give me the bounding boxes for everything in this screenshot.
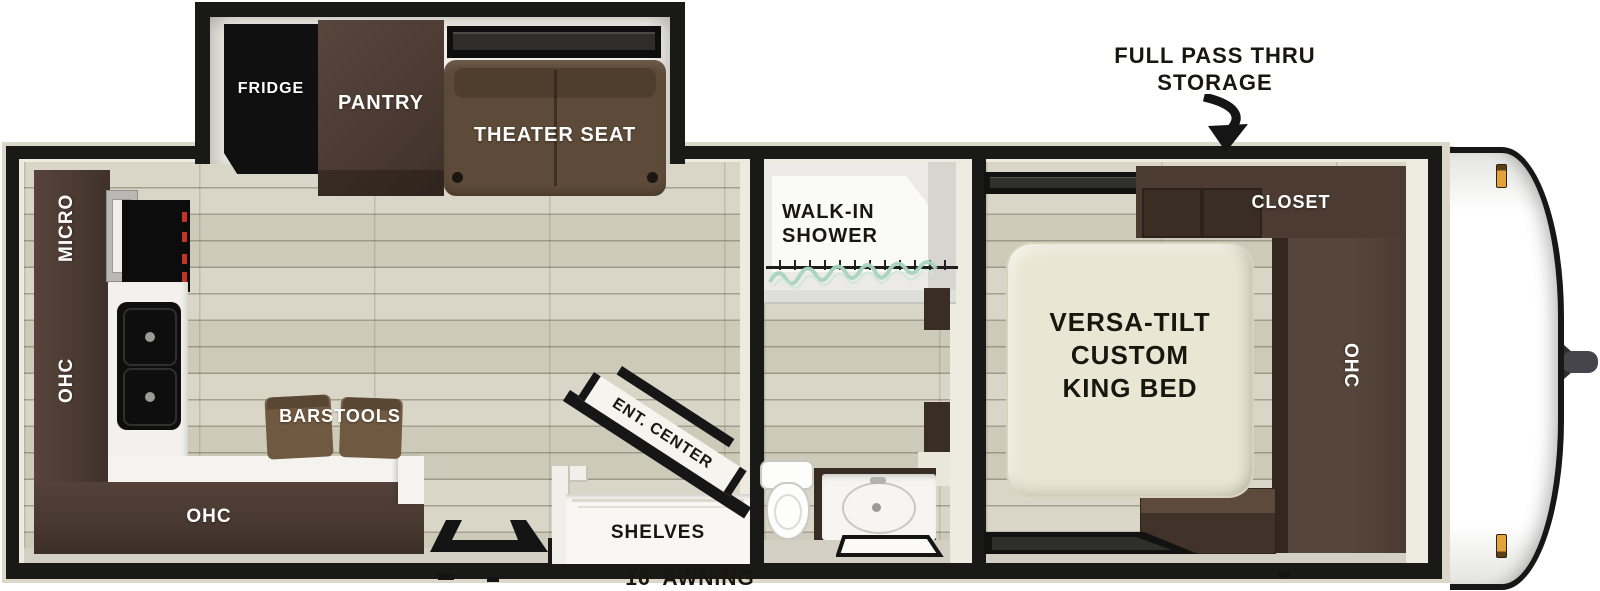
king-bed: VERSA-TILT CUSTOM KING BED (1006, 242, 1254, 498)
bedroom-window-head (984, 172, 1142, 194)
awning-arm-mark (487, 577, 499, 582)
fridge: FRIDGE (224, 24, 318, 174)
vanity-faucet (870, 477, 886, 484)
toilet-bowl (766, 482, 810, 540)
bathroom-right-wall (972, 146, 986, 579)
bathroom-left-wall (750, 146, 764, 579)
theater-seat-label: THEATER SEAT (444, 124, 666, 147)
slideout-window (447, 26, 661, 58)
cooktop (122, 200, 190, 292)
sink-drain-upper (145, 332, 155, 342)
theater-seat-cupholder-right (647, 172, 658, 183)
shower-label-line2: SHOWER (782, 224, 878, 248)
awning-arm-mark (438, 574, 454, 580)
cooktop-knob (182, 272, 187, 282)
bedroom-ohc-label: OHC (1332, 324, 1368, 408)
pass-thru-storage-line2: STORAGE (1095, 69, 1335, 96)
shelves-label: SHELVES (566, 522, 750, 544)
pantry-label: PANTRY (318, 92, 444, 115)
closet-door-panel (1142, 188, 1202, 238)
pass-thru-storage-line1: FULL PASS THRU (1095, 42, 1335, 69)
rv-floorplan: FRIDGE PANTRY THEATER SEAT MICRO OHC OHC (0, 0, 1600, 591)
barstool (264, 394, 333, 459)
bar-counter-step (398, 456, 424, 504)
toilet-seat-ring (774, 494, 802, 530)
bedroom-window-foot (984, 528, 1200, 556)
kitchen-ohc-lower-label: OHC (34, 506, 384, 528)
slideout-window-glass (453, 32, 655, 50)
closet: CLOSET (1136, 166, 1406, 238)
cooktop-knob (182, 254, 187, 264)
bath-cabinet-accent-upper (924, 288, 950, 330)
front-cap (1450, 147, 1564, 590)
bedroom-window-head-glass (990, 177, 1136, 188)
bath-mat (836, 534, 944, 558)
pass-thru-storage-label: FULL PASS THRU STORAGE (1095, 42, 1335, 96)
pantry: PANTRY (318, 20, 444, 196)
cooktop-knob (182, 232, 187, 242)
kitchen-ohc-wall-label: OHC (42, 338, 92, 422)
shower-label-line1: WALK-IN (782, 200, 878, 224)
bed-label-line2: CUSTOM (1008, 339, 1252, 372)
cooktop-knob (182, 212, 187, 222)
fridge-label: FRIDGE (224, 80, 318, 98)
marker-light-top (1496, 164, 1507, 188)
barstools-label: BARSTOOLS (258, 406, 422, 426)
bed-label-line3: KING BED (1008, 372, 1252, 405)
bed-label: VERSA-TILT CUSTOM KING BED (1008, 306, 1252, 405)
marker-light-bottom (1496, 534, 1507, 558)
bed-label-line1: VERSA-TILT (1008, 306, 1252, 339)
awning-arm-mark (1278, 572, 1290, 577)
vanity-drain (872, 503, 881, 512)
pantry-front-face (318, 170, 444, 196)
bedroom-front-wall (1428, 146, 1442, 579)
entry-step (424, 516, 556, 554)
theater-seat: THEATER SEAT (444, 60, 666, 196)
kitchen-lower-cabinet: OHC (34, 482, 424, 554)
micro-label: MICRO (42, 176, 92, 280)
closet-label: CLOSET (1196, 192, 1386, 213)
bath-cabinet-accent-lower (924, 402, 950, 454)
storage-arrow-icon (1190, 94, 1256, 154)
sink-drain-lower (145, 392, 155, 402)
awning-label: 16’ AWNING (598, 567, 782, 591)
shelves-edge-line (578, 506, 738, 508)
kitchen-sink (117, 302, 181, 430)
shower-label: WALK-IN SHOWER (782, 200, 878, 248)
shower-glass-curtain (768, 256, 956, 292)
theater-seat-cupholder-left (452, 172, 463, 183)
